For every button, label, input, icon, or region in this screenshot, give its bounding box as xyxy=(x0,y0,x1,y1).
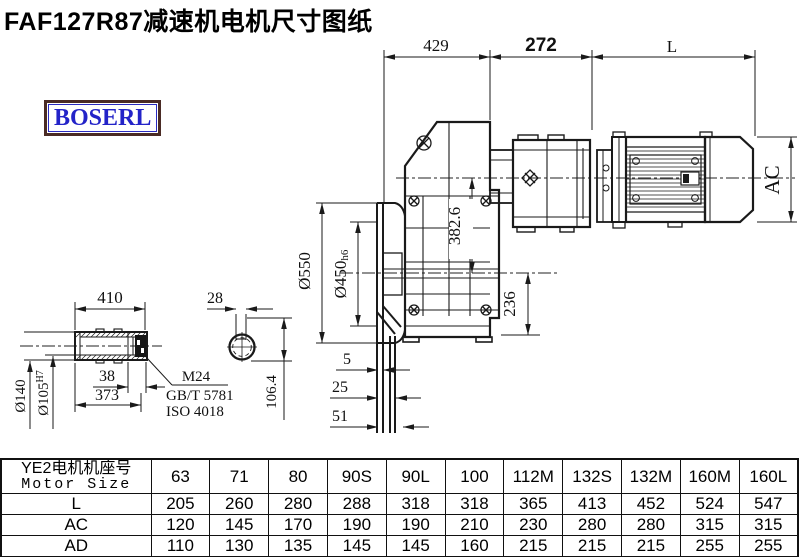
header-en: Motor Size xyxy=(2,477,151,493)
cell-AD-100: 160 xyxy=(445,536,504,557)
cell-AC-90l: 190 xyxy=(386,515,445,536)
cell-AD-160m: 255 xyxy=(680,536,739,557)
dim-L: L xyxy=(667,37,677,56)
dim-28: 28 xyxy=(207,290,223,307)
dimension-labels: 429 272 L AC 382.6 236 Ø550 Ø450h6 5 25 … xyxy=(13,35,784,425)
row-label-AC: AC xyxy=(1,515,151,536)
header-cn: YE2电机机座号 xyxy=(2,460,151,477)
cell-L-160l: 547 xyxy=(739,494,798,515)
dimension-arrows xyxy=(27,54,794,430)
cell-AC-160m: 315 xyxy=(680,515,739,536)
label-iso-4018: ISO 4018 xyxy=(166,404,224,420)
adapter-coupling xyxy=(490,135,612,232)
dim-flange-od: Ø550 xyxy=(295,252,314,290)
dim-5: 5 xyxy=(343,351,351,368)
cell-L-90l: 318 xyxy=(386,494,445,515)
col-160m: 160M xyxy=(680,459,739,494)
dim-25: 25 xyxy=(332,379,348,396)
drawing-page: FAF127R87减速机电机尺寸图纸 BOSERL xyxy=(0,0,800,557)
dim-373: 373 xyxy=(95,387,119,404)
cell-L-90s: 288 xyxy=(327,494,386,515)
cell-L-160m: 524 xyxy=(680,494,739,515)
col-132s: 132S xyxy=(563,459,622,494)
shaft-end-cap xyxy=(135,335,146,357)
dim-spigot: Ø450h6 xyxy=(331,249,351,298)
cell-AC-71: 145 xyxy=(210,515,269,536)
dimension-lines xyxy=(24,50,797,429)
gearbox-housing xyxy=(383,122,499,342)
cell-L-132s: 413 xyxy=(563,494,622,515)
col-63: 63 xyxy=(151,459,210,494)
col-132m: 132M xyxy=(622,459,681,494)
dim-382-6: 382.6 xyxy=(445,207,464,245)
col-71: 71 xyxy=(210,459,269,494)
cell-AC-80: 170 xyxy=(269,515,328,536)
row-label-L: L xyxy=(1,494,151,515)
col-160l: 160L xyxy=(739,459,798,494)
label-m24: M24 xyxy=(182,369,211,385)
cell-AD-132m: 215 xyxy=(622,536,681,557)
col-90l: 90L xyxy=(386,459,445,494)
dim-AC: AC xyxy=(760,165,784,194)
cell-AD-132s: 215 xyxy=(563,536,622,557)
cell-L-100: 318 xyxy=(445,494,504,515)
motor-size-table: YE2电机机座号 Motor Size 63 71 80 90S 90L 100… xyxy=(0,458,799,557)
cell-AD-90l: 145 xyxy=(386,536,445,557)
dim-od-140: Ø140 xyxy=(13,379,29,412)
cell-L-80: 280 xyxy=(269,494,328,515)
cell-AD-63: 110 xyxy=(151,536,210,557)
motor-size-header: YE2电机机座号 Motor Size xyxy=(1,459,151,494)
cell-AD-112m: 215 xyxy=(504,536,563,557)
cell-AC-100: 210 xyxy=(445,515,504,536)
cell-AC-132s: 280 xyxy=(563,515,622,536)
dim-bore-105: Ø105H7 xyxy=(35,370,52,416)
cell-AD-80: 135 xyxy=(269,536,328,557)
table-row-L: L 205 260 280 288 318 318 365 413 452 52… xyxy=(1,494,798,515)
cell-AC-90s: 190 xyxy=(327,515,386,536)
col-80: 80 xyxy=(269,459,328,494)
cell-L-112m: 365 xyxy=(504,494,563,515)
cell-AC-132m: 280 xyxy=(622,515,681,536)
cell-AD-71: 130 xyxy=(210,536,269,557)
dim-410: 410 xyxy=(97,288,123,307)
dim-106-4: 106.4 xyxy=(264,375,280,409)
cell-L-71: 260 xyxy=(210,494,269,515)
dim-272: 272 xyxy=(525,35,557,56)
dim-429: 429 xyxy=(423,36,449,55)
fan-cowl xyxy=(705,137,753,222)
table-header-row: YE2电机机座号 Motor Size 63 71 80 90S 90L 100… xyxy=(1,459,798,494)
shaft-end-view xyxy=(227,332,257,362)
dim-38: 38 xyxy=(99,368,115,385)
cell-AC-63: 120 xyxy=(151,515,210,536)
table-row-AC: AC 120 145 170 190 190 210 230 280 280 3… xyxy=(1,515,798,536)
col-112m: 112M xyxy=(504,459,563,494)
label-gbt-5781: GB/T 5781 xyxy=(166,388,234,404)
cell-AC-112m: 230 xyxy=(504,515,563,536)
motor xyxy=(612,132,753,228)
cell-L-63: 205 xyxy=(151,494,210,515)
col-100: 100 xyxy=(445,459,504,494)
col-90s: 90S xyxy=(327,459,386,494)
dim-51: 51 xyxy=(332,408,348,425)
cell-AD-90s: 145 xyxy=(327,536,386,557)
cell-L-132m: 452 xyxy=(622,494,681,515)
table-row-AD: AD 110 130 135 145 145 160 215 215 215 2… xyxy=(1,536,798,557)
dim-236: 236 xyxy=(500,291,519,317)
cell-AD-160l: 255 xyxy=(739,536,798,557)
cell-AC-160l: 315 xyxy=(739,515,798,536)
technical-drawing: 429 272 L AC 382.6 236 Ø550 Ø450h6 5 25 … xyxy=(0,0,800,458)
row-label-AD: AD xyxy=(1,536,151,557)
